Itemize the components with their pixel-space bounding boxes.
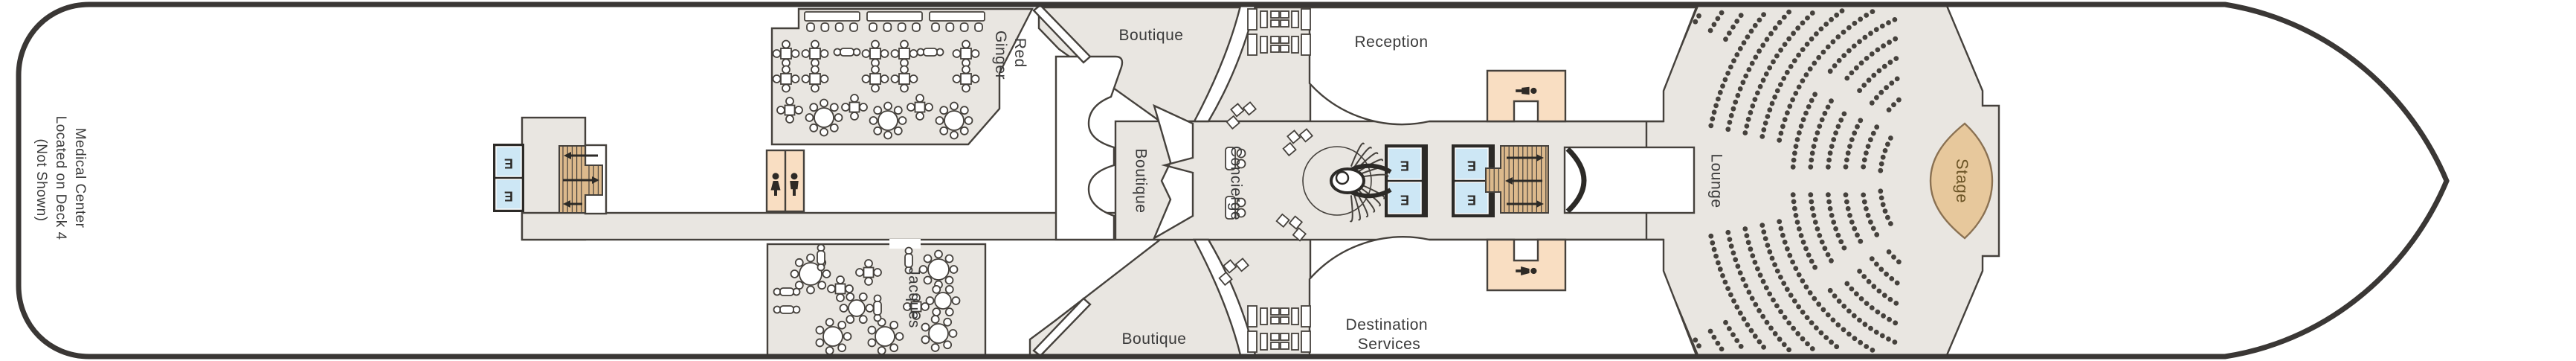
theater-seat: [1836, 124, 1841, 130]
chair: [818, 281, 825, 289]
theater-seat: [1739, 344, 1744, 349]
theater-seat: [1733, 257, 1738, 262]
dining-table-round: [935, 293, 951, 309]
theater-seat: [1861, 274, 1867, 279]
theater-seat: [1875, 48, 1881, 53]
chair: [796, 259, 803, 266]
theater-seat: [1864, 301, 1870, 306]
theater-seat: [1795, 25, 1800, 31]
theater-seat: [1716, 16, 1721, 22]
theater-seat: [1761, 12, 1766, 17]
theater-seat: [1841, 327, 1846, 332]
theater-seat: [1808, 192, 1813, 197]
theater-seat: [1782, 15, 1787, 20]
chair: [786, 115, 793, 123]
dining-table-round: [823, 327, 843, 346]
theater-seat: [1786, 10, 1791, 15]
theater-seat: [1854, 291, 1859, 296]
counter: [805, 12, 860, 21]
stool: [946, 23, 953, 31]
theater-seat: [1880, 24, 1885, 29]
theater-seat: [1734, 338, 1739, 343]
theater-seat: [1795, 220, 1800, 225]
dining-table-round: [814, 108, 834, 127]
label-concierge: Concierge: [1227, 146, 1244, 220]
chair: [910, 50, 918, 57]
theater-seat: [1812, 61, 1817, 66]
theater-seat: [1840, 8, 1845, 13]
theater-seat: [1765, 243, 1771, 248]
theater-seat: [1893, 56, 1899, 61]
theater-seat: [1862, 199, 1867, 205]
theater-seat: [1800, 20, 1806, 25]
stool: [869, 23, 877, 31]
chair: [820, 129, 828, 136]
theater-seat: [1888, 221, 1893, 226]
theater-seat: [1864, 206, 1869, 211]
theater-seat: [1786, 348, 1791, 353]
theater-seat: [1837, 58, 1842, 63]
theater-seat: [1863, 35, 1868, 40]
theater-seat: [1792, 150, 1797, 156]
chair: [924, 276, 932, 284]
chair: [945, 255, 953, 263]
chair: [874, 269, 881, 276]
chair: [846, 316, 854, 323]
chair: [868, 327, 875, 334]
theater-seat: [1770, 101, 1775, 106]
theater-seat: [1826, 252, 1831, 258]
theater-seat: [1747, 290, 1752, 295]
theater-seat: [1877, 68, 1882, 74]
ottoman: [1281, 333, 1289, 340]
theater-seat: [1816, 55, 1821, 60]
theater-seat: [1756, 308, 1762, 313]
dining-table-round: [875, 327, 895, 346]
theater-seat: [1883, 208, 1888, 214]
dining-table-square: [915, 103, 925, 112]
theater-seat: [1725, 230, 1730, 235]
theater-seat: [1831, 39, 1836, 45]
theater-seat: [1888, 60, 1893, 65]
theater-seat: [1730, 332, 1736, 337]
theater-seat: [1788, 64, 1794, 69]
theater-seat: [1778, 82, 1783, 87]
label-boutique-bottom: Boutique: [1122, 330, 1187, 348]
dining-table-square: [870, 48, 880, 59]
theater-seat: [1727, 237, 1733, 242]
theater-seat: [1778, 309, 1783, 314]
theater-seat: [1738, 270, 1743, 275]
chair: [831, 124, 838, 132]
chair: [945, 276, 953, 284]
chair: [962, 66, 970, 74]
theater-seat: [1805, 315, 1810, 320]
ottoman: [1281, 308, 1289, 315]
chair: [933, 308, 940, 316]
theater-seat: [1786, 36, 1791, 42]
label-lounge: Lounge: [1707, 153, 1725, 208]
theater-seat: [1718, 266, 1723, 272]
theater-seat: [1844, 192, 1849, 197]
theater-seat: [1861, 83, 1867, 88]
dining-table-square: [899, 74, 909, 84]
theater-seat: [1846, 332, 1852, 337]
theater-seat: [1815, 130, 1820, 135]
theater-seat: [1841, 30, 1846, 35]
theater-seat: [1881, 313, 1886, 319]
theater-seat: [1731, 106, 1736, 112]
chair: [802, 50, 810, 57]
theater-seat: [1723, 320, 1728, 325]
bench: [1292, 36, 1298, 53]
theater-seat: [1792, 298, 1797, 304]
theater-seat: [1870, 51, 1875, 57]
elevator-letter: E: [1400, 192, 1409, 207]
theater-seat: [1817, 124, 1822, 129]
theater-seat: [1734, 304, 1739, 310]
theater-seat: [1877, 289, 1882, 294]
chair: [786, 98, 793, 105]
theater-seat: [1791, 199, 1797, 205]
theater-seat: [1826, 164, 1831, 170]
chair: [865, 260, 872, 267]
theater-seat: [1799, 124, 1804, 129]
chair: [872, 66, 879, 74]
theater-seat: [1797, 130, 1802, 135]
theater-seat: [1864, 344, 1869, 349]
theater-seat: [1861, 193, 1866, 198]
theater-seat: [1812, 144, 1817, 149]
theater-seat: [1764, 285, 1769, 290]
table-for-two: [924, 48, 937, 56]
theater-seat: [1885, 215, 1890, 220]
chair: [940, 106, 947, 114]
theater-seat: [1779, 131, 1784, 136]
theater-seat: [1800, 47, 1806, 52]
elevator-letter: E: [504, 188, 513, 203]
theater-seat: [1846, 48, 1852, 54]
label-boutique-center: Boutique: [1132, 149, 1149, 214]
theater-seat: [1741, 277, 1746, 282]
chair: [933, 286, 940, 293]
chair: [821, 75, 828, 83]
theater-seat: [1787, 253, 1792, 258]
theater-seat: [1734, 52, 1739, 57]
chair: [837, 294, 844, 301]
chair: [844, 333, 851, 340]
theater-seat: [1736, 93, 1741, 98]
theater-seat: [1820, 240, 1825, 245]
theater-seat: [1870, 9, 1875, 14]
theater-seat: [1858, 340, 1863, 345]
theater-seat: [1805, 16, 1810, 21]
elevator-letter: E: [504, 156, 513, 170]
theater-seat: [1882, 293, 1887, 298]
theater-seat: [1812, 296, 1817, 301]
theater-seat: [1723, 280, 1728, 285]
theater-seat: [1749, 29, 1754, 34]
chair: [936, 117, 944, 124]
theater-seat: [1805, 42, 1810, 47]
theater-seat: [1758, 84, 1763, 89]
theater-seat: [1885, 141, 1890, 147]
theater-seat: [1832, 293, 1838, 298]
theater-seat: [1857, 39, 1862, 45]
theater-seat: [1756, 48, 1762, 54]
dining-table-round: [944, 111, 964, 130]
theater-seat: [1796, 53, 1801, 58]
theater-seat: [1881, 43, 1886, 48]
theater-seat: [1761, 229, 1766, 234]
theater-seat: [1842, 246, 1847, 251]
theater-seat: [1829, 339, 1834, 345]
theater-seat: [1783, 117, 1788, 122]
dining-table-square: [864, 268, 874, 278]
theater-seat: [1783, 42, 1788, 47]
deck-plan: Medical Center Located on Deck 4 (Not Sh…: [0, 0, 2576, 361]
theater-seat: [1727, 120, 1733, 125]
theater-seat: [1826, 45, 1831, 50]
theater-seat: [1832, 63, 1838, 68]
theater-seat: [1800, 278, 1806, 284]
theater-seat: [1815, 226, 1820, 231]
chair: [892, 75, 899, 83]
theater-seat: [1780, 124, 1786, 129]
theater-seat: [1753, 260, 1758, 265]
theater-seat: [1829, 258, 1834, 263]
theater-seat: [1884, 272, 1889, 277]
chair: [860, 316, 867, 323]
theater-seat: [1710, 240, 1715, 246]
chair: [791, 270, 799, 278]
chair: [773, 50, 781, 57]
theater-seat: [1820, 118, 1825, 123]
theater-seat: [1829, 144, 1835, 149]
theater-seat: [1891, 102, 1896, 107]
theater-seat: [1810, 10, 1815, 16]
theater-seat: [1755, 91, 1760, 96]
theater-seat: [1874, 232, 1879, 237]
theater-seat: [1875, 310, 1881, 315]
chair: [953, 75, 961, 83]
theater-seat: [1895, 77, 1900, 82]
theater-seat: [1779, 226, 1784, 231]
chair: [916, 112, 924, 120]
theater-seat: [1849, 137, 1855, 142]
stool: [821, 23, 828, 31]
chair: [866, 304, 874, 312]
dining-table-square: [870, 74, 880, 84]
theater-seat: [1870, 100, 1875, 106]
theater-seat: [1812, 92, 1817, 97]
theater-seat: [1834, 13, 1839, 18]
theater-seat: [1746, 240, 1751, 245]
theater-seat: [1823, 335, 1829, 340]
theater-seat: [1896, 259, 1902, 264]
theater-seat: [1829, 17, 1834, 22]
theater-seat: [1771, 298, 1776, 303]
chair: [811, 85, 819, 92]
chair: [870, 117, 878, 124]
theater-seat: [1841, 53, 1846, 58]
theater-seat: [1753, 23, 1758, 28]
chair: [782, 85, 790, 92]
theater-seat: [1800, 78, 1806, 83]
label-boutique-top: Boutique: [1119, 27, 1184, 44]
theater-seat: [1794, 144, 1799, 149]
theater-seat: [1829, 213, 1835, 218]
theater-seat: [1772, 95, 1777, 100]
theater-seat: [1826, 192, 1831, 197]
theater-seat: [1866, 144, 1871, 149]
label-reception: Reception: [1354, 33, 1428, 51]
stool: [912, 23, 920, 31]
chair: [896, 333, 904, 340]
dining-table-square: [850, 103, 860, 112]
theater-seat: [1887, 39, 1892, 45]
chair: [946, 286, 953, 293]
theater-seat: [1849, 220, 1855, 225]
theater-seat: [1753, 55, 1758, 60]
theater-seat: [1781, 76, 1786, 81]
theater-seat: [1870, 348, 1875, 353]
theater-seat: [1712, 247, 1717, 252]
table-for-two: [780, 288, 793, 295]
theater-seat: [1738, 46, 1743, 51]
theater-seat: [1719, 10, 1725, 16]
chair: [777, 106, 785, 114]
theater-seat: [1868, 137, 1873, 142]
theater-seat: [1879, 162, 1884, 167]
theater-seat: [1888, 297, 1893, 302]
theater-seat: [1809, 320, 1815, 325]
chair: [856, 269, 863, 276]
chair: [907, 103, 915, 111]
chair: [901, 41, 908, 48]
stool: [836, 23, 843, 31]
chair: [810, 103, 817, 111]
theater-seat: [1788, 293, 1794, 298]
theater-seat: [1893, 301, 1899, 306]
theater-seat: [1838, 239, 1844, 244]
chair: [838, 344, 846, 351]
theater-seat: [1808, 290, 1813, 295]
theater-seat: [1883, 148, 1888, 153]
chair: [821, 50, 828, 57]
chair: [828, 285, 835, 293]
theater-seat: [1816, 301, 1821, 307]
theater-seat: [1750, 253, 1755, 258]
bench: [1260, 308, 1267, 325]
theater-seat: [1800, 310, 1806, 315]
theater-seat: [1770, 256, 1775, 261]
theater-seat: [1844, 76, 1849, 81]
chair: [895, 127, 902, 135]
theater-seat: [1834, 344, 1839, 349]
dining-table-square: [781, 48, 791, 59]
theater-seat: [1823, 246, 1828, 251]
theater-seat: [1813, 220, 1818, 225]
theater-seat: [1826, 313, 1831, 318]
theater-seat: [1867, 279, 1872, 284]
theater-seat: [1753, 333, 1758, 339]
theater-seat: [1708, 329, 1713, 334]
theater-seat: [1880, 333, 1885, 339]
theater-seat: [1750, 296, 1755, 301]
theater-seat: [1814, 31, 1819, 36]
theater-seat: [1857, 88, 1862, 93]
bench: [1301, 34, 1310, 55]
elevator-letter: E: [1467, 158, 1476, 173]
chair: [950, 266, 958, 273]
theater-seat: [1867, 77, 1872, 83]
theater-seat: [1887, 317, 1892, 322]
theater-seat: [1828, 68, 1833, 74]
chair: [874, 127, 881, 135]
theater-seat: [1773, 25, 1778, 31]
theater-seat: [1828, 288, 1833, 293]
theater-seat: [1797, 85, 1802, 90]
theater-seat: [1708, 28, 1713, 33]
theater-seat: [1852, 336, 1858, 341]
theater-seat: [1778, 48, 1783, 53]
theater-seat: [1847, 144, 1852, 149]
ottoman: [1271, 36, 1279, 43]
stool: [850, 23, 857, 31]
theater-seat: [1731, 298, 1736, 304]
chair: [872, 41, 879, 48]
bench: [1248, 331, 1257, 352]
theater-seat: [1777, 336, 1783, 342]
chair: [802, 75, 810, 83]
theater-seat: [1846, 150, 1851, 156]
theater-seat: [1727, 31, 1732, 36]
theater-seat: [1895, 281, 1900, 286]
theater-seat: [1725, 127, 1730, 132]
theater-seat: [1727, 326, 1732, 331]
bench: [1260, 11, 1267, 28]
theater-seat: [1745, 233, 1750, 238]
theater-seat: [1823, 111, 1828, 116]
theater-seat: [1761, 279, 1766, 284]
chair: [892, 50, 899, 57]
theater-seat: [1783, 240, 1788, 245]
theater-seat: [1804, 284, 1809, 290]
theater-seat: [1753, 302, 1758, 307]
theater-seat: [1803, 111, 1809, 116]
theater-seat: [1757, 18, 1762, 23]
theater-seat: [1791, 31, 1796, 36]
theater-seat: [1743, 284, 1748, 289]
theater-seat: [1874, 124, 1879, 130]
chair: [842, 103, 849, 111]
chair: [811, 41, 819, 48]
theater-seat: [1868, 326, 1873, 331]
chair: [860, 293, 867, 301]
theater-seat: [1767, 249, 1772, 255]
theater-seat: [1800, 336, 1806, 342]
label-jacques: Jacques: [905, 267, 922, 328]
chair: [935, 251, 942, 258]
stool: [975, 23, 982, 31]
theater-seat: [1785, 70, 1790, 75]
theater-seat: [1896, 98, 1902, 103]
theater-seat: [1828, 150, 1833, 156]
ottoman: [1271, 342, 1279, 349]
chair: [826, 347, 834, 354]
theater-seat: [1783, 315, 1788, 320]
